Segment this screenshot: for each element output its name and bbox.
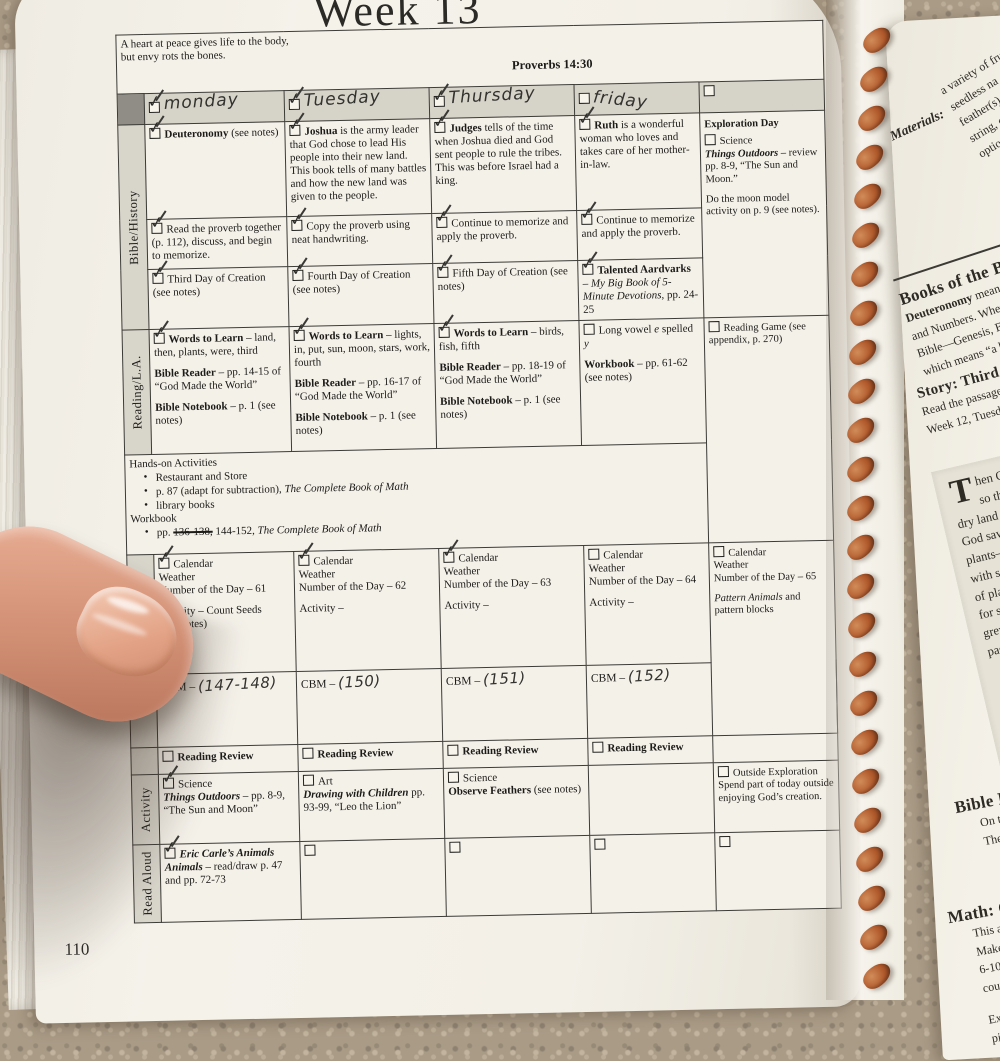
cell-bible3-tuesday: Fourth Day of Creation (see notes)	[288, 264, 434, 327]
bible-notebook-section: Bible Notebo On the botto Then have h	[953, 780, 1000, 855]
checkbox	[291, 220, 302, 231]
spiral-coil	[843, 413, 879, 447]
header-corner-cell	[117, 94, 145, 126]
header-thursday: Thursday	[429, 85, 575, 119]
row-label-reading-la: Reading/L.A.	[122, 329, 152, 455]
checkbox	[289, 125, 300, 136]
cell-activity-extra: Outside Exploration Spend part of today …	[713, 760, 839, 833]
books-of-bible-section: Books of the Bible Deuteronomy means and…	[893, 217, 1000, 381]
spiral-coil	[854, 881, 890, 915]
cell-bible1-thursday: Judges tells of the time when Joshua die…	[430, 116, 577, 214]
checkbox	[708, 321, 719, 332]
cell-bible3-friday: Talented Aardvarks – My Big Book of 5-Mi…	[578, 258, 704, 320]
checkbox	[304, 845, 315, 856]
checkbox	[154, 333, 165, 344]
header-extra	[699, 79, 825, 113]
cell-cbm-thursday: CBM – (151)	[441, 665, 587, 741]
checkbox	[594, 838, 605, 849]
cell-reading-friday: Long vowel e spelled y Workbook – pp. 61…	[579, 318, 707, 446]
spiral-coil	[846, 686, 882, 720]
monday-handwriting: monday	[163, 90, 239, 114]
checkbox	[436, 217, 447, 228]
cell-bible1-tuesday: Joshua is the army leader that God chose…	[285, 119, 432, 217]
checkbox	[151, 223, 162, 234]
checkbox	[294, 330, 305, 341]
spiral-coil	[848, 218, 884, 252]
spiral-coil	[844, 374, 880, 408]
spiral-coil	[856, 62, 892, 96]
friday-handwriting: friday	[592, 87, 649, 112]
cell-readaloud-friday	[590, 833, 717, 914]
cell-bible1-friday: Ruth is a wonderful woman who loves and …	[575, 113, 702, 211]
cell-cbm-friday: CBM – (152)	[586, 663, 713, 739]
cell-exploration-day: Exploration Day Science Things Outdoors …	[700, 110, 829, 317]
checkbox	[437, 267, 448, 278]
cell-readaloud-extra	[715, 830, 842, 911]
cell-math-tuesday: Calendar WeatherNumber of the Day – 62 A…	[294, 548, 441, 671]
cell-bible2-tuesday: Copy the proverb using neat handwriting.	[287, 214, 433, 267]
cell-review-tuesday: Reading Review	[298, 741, 444, 771]
cell-bible3-thursday: Fifth Day of Creation (see notes)	[433, 261, 579, 324]
checkbox	[588, 549, 599, 560]
cbm-tuesday-handwriting: (150)	[337, 672, 381, 692]
spiral-coil	[843, 530, 879, 564]
spiral-coil	[846, 296, 882, 330]
cell-review-friday: Reading Review	[588, 736, 714, 766]
spiral-coil	[847, 257, 883, 291]
cell-readaloud-tuesday	[300, 838, 447, 919]
cell-activity-thursday: Science Observe Feathers (see notes)	[443, 765, 589, 838]
checkbox	[718, 766, 729, 777]
cell-math-friday: Calendar WeatherNumber of the Day – 64 A…	[584, 543, 711, 666]
spiral-coil	[848, 764, 884, 798]
cell-review-extra	[713, 733, 839, 763]
checkbox	[713, 546, 724, 557]
checkbox	[579, 119, 590, 130]
checkbox	[583, 324, 594, 335]
cell-bible2-monday: Read the proverb together (p. 112), disc…	[147, 217, 288, 270]
spiral-coil	[843, 491, 879, 525]
monday-checkbox	[149, 102, 160, 113]
checkbox	[449, 841, 460, 852]
checkbox	[434, 122, 445, 133]
thursday-checkbox	[434, 96, 445, 107]
spiral-coil	[845, 335, 881, 369]
spiral-coil	[845, 647, 881, 681]
cell-reading-game: Reading Game (see appendix, p. 270)	[704, 315, 834, 543]
cbm-thursday-handwriting: (151)	[482, 669, 526, 689]
cell-bible1-monday: Deuteronomy (see notes)	[145, 122, 287, 220]
cell-bible3-monday: Third Day of Creation (see notes)	[148, 267, 289, 330]
spiral-coil	[852, 140, 888, 174]
materials-section: Materials: a variety of fru seedless na …	[887, 70, 1000, 214]
row-label-bible-history: Bible/History	[118, 125, 149, 330]
spiral-coil	[854, 101, 890, 135]
cell-reading-monday: Words to Learn – land, then, plants, wer…	[149, 326, 292, 454]
checkbox	[581, 214, 592, 225]
checkbox	[292, 270, 303, 281]
spiral-coil	[843, 569, 879, 603]
cell-hands-on-activities: Hands-on Activities Restaurant and Store…	[125, 443, 709, 555]
spiral-coil	[850, 803, 886, 837]
checkbox	[298, 555, 309, 566]
checkbox	[439, 327, 450, 338]
cell-readaloud-thursday	[445, 835, 592, 916]
spiral-coil	[844, 608, 880, 642]
cell-review-thursday: Reading Review	[443, 738, 589, 768]
friday-checkbox	[579, 93, 590, 104]
spiral-coil	[847, 725, 883, 759]
spiral-coil	[856, 920, 892, 954]
header-tuesday: Tuesday	[284, 88, 430, 122]
checkbox	[443, 552, 454, 563]
header-monday: monday	[144, 91, 285, 125]
checkbox	[719, 836, 730, 847]
checkbox	[582, 264, 593, 275]
checkbox	[448, 771, 459, 782]
tuesday-handwriting: Tuesday	[303, 87, 381, 111]
extra-checkbox	[704, 85, 715, 96]
thursday-handwriting: Thursday	[448, 83, 536, 108]
spiral-coil	[843, 452, 879, 486]
checkbox	[447, 744, 458, 755]
weekly-planner-table: A heart at peace gives life to the body,…	[115, 20, 841, 924]
cell-bible2-thursday: Continue to memorize and apply the prove…	[432, 211, 578, 264]
checkbox	[149, 128, 160, 139]
cell-reading-tuesday: Words to Learn – lights, in, put, sun, m…	[289, 323, 437, 451]
spiral-coil	[859, 959, 895, 993]
cell-cbm-tuesday: CBM – (150)	[296, 668, 442, 744]
book-photo: { "page": { "week_title": "Week 13", "pa…	[0, 0, 1000, 1000]
spiral-binding	[838, 30, 902, 1000]
math-section: Math: Count This activi Make a ch 6-10, …	[946, 891, 1000, 1052]
checkbox	[152, 273, 163, 284]
spiral-coil	[852, 842, 888, 876]
tuesday-checkbox	[289, 99, 300, 110]
cell-math-extra: Calendar WeatherNumber of the Day – 65 P…	[709, 540, 838, 736]
checkbox	[705, 134, 716, 145]
cell-activity-friday	[588, 763, 714, 836]
checkbox	[303, 775, 314, 786]
cell-activity-tuesday: Art Drawing with Children pp. 93-99, “Le…	[298, 768, 444, 841]
checkbox	[302, 748, 313, 759]
spiral-coil	[850, 179, 886, 213]
cell-math-thursday: Calendar WeatherNumber of the Day – 63 A…	[439, 545, 586, 668]
cell-reading-thursday: Words to Learn – birds, fish, fifth Bibl…	[434, 320, 582, 448]
checkbox	[158, 558, 169, 569]
checkbox	[592, 741, 603, 752]
cbm-friday-handwriting: (152)	[627, 666, 671, 686]
header-friday: friday	[574, 82, 700, 116]
